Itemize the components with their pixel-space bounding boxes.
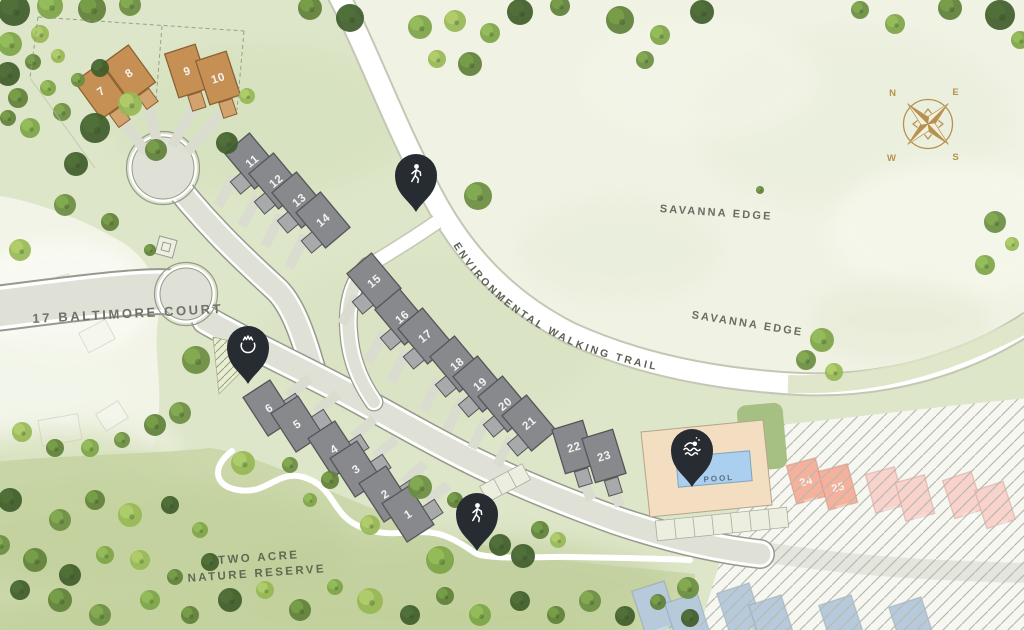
tree (531, 521, 549, 539)
tree (0, 110, 16, 126)
tree (89, 604, 111, 626)
tree (9, 239, 31, 261)
tree (64, 152, 88, 176)
tree (71, 73, 85, 87)
tree (360, 515, 380, 535)
tree (51, 49, 65, 63)
tree (681, 609, 699, 627)
tree (975, 255, 995, 275)
tree (428, 50, 446, 68)
tree (218, 588, 242, 612)
tree (161, 496, 179, 514)
tree (984, 211, 1006, 233)
tree (547, 606, 565, 624)
tree (400, 605, 420, 625)
compass-letter-E: E (952, 87, 959, 98)
compass-letter-S: S (952, 152, 959, 163)
tree (825, 363, 843, 381)
utility-pad (155, 236, 177, 258)
tree (53, 103, 71, 121)
tree (130, 550, 150, 570)
tree (181, 606, 199, 624)
tree (140, 590, 160, 610)
tree (59, 564, 81, 586)
tree (80, 113, 110, 143)
tree (23, 548, 47, 572)
tree (20, 118, 40, 138)
tree (851, 1, 869, 19)
tree (408, 475, 432, 499)
tree (469, 604, 491, 626)
tree (289, 599, 311, 621)
tree (796, 350, 816, 370)
tree (336, 4, 364, 32)
compass-letter-W: W (887, 153, 897, 164)
tree (550, 532, 566, 548)
tree (118, 92, 142, 116)
tree (256, 581, 274, 599)
tree (650, 594, 666, 610)
tree (321, 471, 339, 489)
tree (507, 0, 533, 25)
tree (489, 534, 511, 556)
tree (101, 213, 119, 231)
tree (201, 553, 219, 571)
tree (444, 10, 466, 32)
tree (408, 15, 432, 39)
tree (436, 587, 454, 605)
tree (25, 54, 41, 70)
tree (985, 0, 1015, 30)
tree (91, 59, 109, 77)
tree (49, 509, 71, 531)
tree (85, 490, 105, 510)
tree (81, 439, 99, 457)
tree (756, 186, 764, 194)
tree (48, 588, 72, 612)
tree (480, 23, 500, 43)
tree (282, 457, 298, 473)
tree (885, 14, 905, 34)
tree (426, 546, 454, 574)
tree (231, 451, 255, 475)
tree (810, 328, 834, 352)
tree (114, 432, 130, 448)
tree (303, 493, 317, 507)
site-plan-map: 2425 (0, 0, 1024, 630)
tree (169, 402, 191, 424)
tree (31, 25, 49, 43)
tree (10, 580, 30, 600)
tree (579, 590, 601, 612)
tree (677, 577, 699, 599)
tree (690, 0, 714, 24)
tree (145, 139, 167, 161)
tree (636, 51, 654, 69)
tree (216, 132, 238, 154)
tree (615, 606, 635, 626)
tree (327, 579, 343, 595)
tree (650, 25, 670, 45)
tree (144, 414, 166, 436)
site-plan-screenshot: 2425 (0, 0, 1024, 630)
tree (1005, 237, 1019, 251)
tree (96, 546, 114, 564)
compass-letter-N: N (889, 88, 897, 99)
tree (167, 569, 183, 585)
tree (46, 439, 64, 457)
tree (606, 6, 634, 34)
tree (40, 80, 56, 96)
tree (12, 422, 32, 442)
tree (8, 88, 28, 108)
tree (464, 182, 492, 210)
tree (239, 88, 255, 104)
tree (118, 503, 142, 527)
tree (144, 244, 156, 256)
tree (182, 346, 210, 374)
tree (192, 522, 208, 538)
tree (510, 591, 530, 611)
tree (54, 194, 76, 216)
tree (357, 588, 383, 614)
tree (458, 52, 482, 76)
tree (511, 544, 535, 568)
